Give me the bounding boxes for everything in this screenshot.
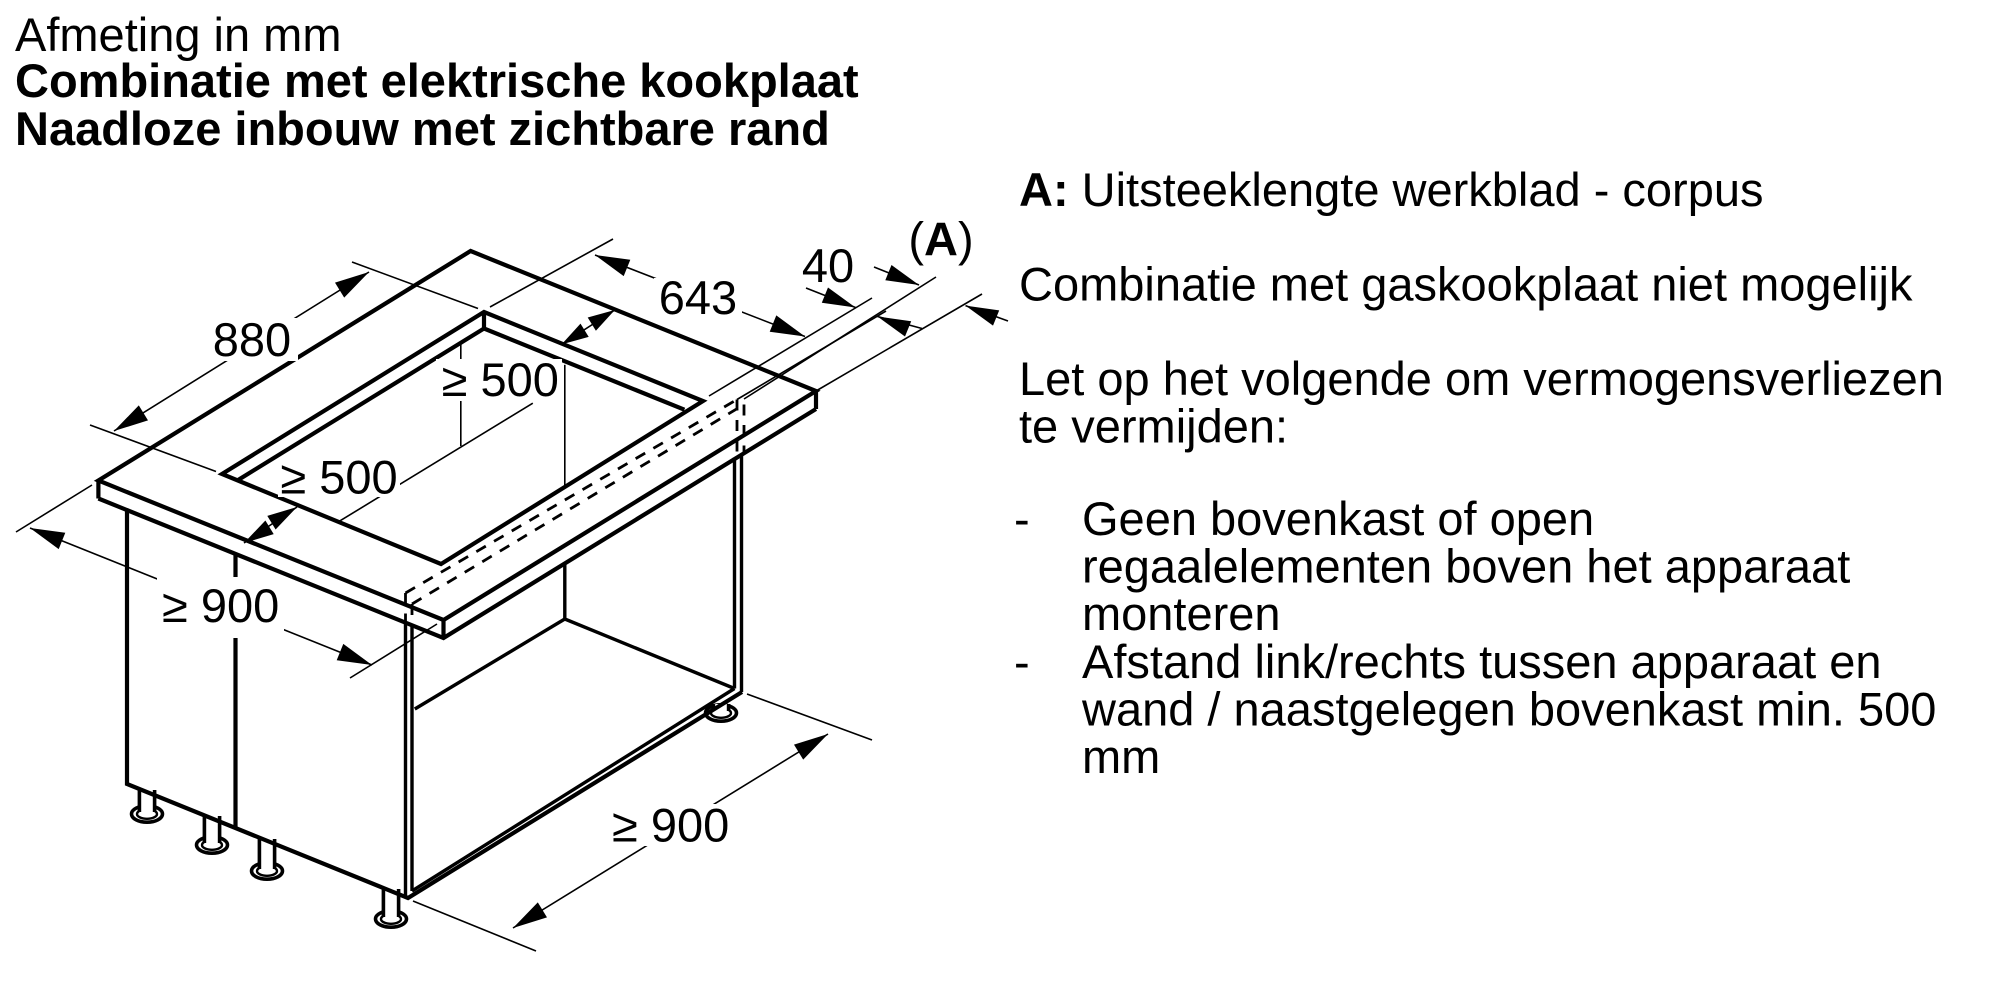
svg-text:≥ 500: ≥ 500 <box>280 451 397 504</box>
svg-text:mm: mm <box>1082 730 1160 783</box>
svg-text:643: 643 <box>659 271 737 324</box>
svg-text:Let op het volgende om vermoge: Let op het volgende om vermogensverlieze… <box>1019 352 1944 405</box>
svg-text:Combinatie met gaskookplaat ni: Combinatie met gaskookplaat niet mogelij… <box>1019 258 1913 311</box>
svg-text:-: - <box>1014 635 1030 688</box>
svg-text:≥ 900: ≥ 900 <box>162 579 279 632</box>
svg-text:Afstand link/rechts tussen app: Afstand link/rechts tussen apparaat en <box>1082 635 1881 688</box>
svg-text:-: - <box>1014 492 1030 545</box>
svg-text:≥ 500: ≥ 500 <box>442 353 559 406</box>
svg-text:Naadloze inbouw met zichtbare: Naadloze inbouw met zichtbare rand <box>15 102 830 155</box>
svg-text:40: 40 <box>802 239 854 292</box>
svg-text:te vermijden:: te vermijden: <box>1019 400 1288 453</box>
svg-text:880: 880 <box>213 313 291 366</box>
svg-text:monteren: monteren <box>1082 587 1281 640</box>
svg-text:≥ 900: ≥ 900 <box>612 799 729 852</box>
svg-text:regaalelementen boven het appa: regaalelementen boven het apparaat <box>1082 540 1850 593</box>
svg-text:(A): (A) <box>908 213 973 266</box>
svg-text:wand / naastgelegen bovenkast: wand / naastgelegen bovenkast min. 500 <box>1081 682 1936 735</box>
svg-text:A: Uitsteeklengte werkblad - c: A: Uitsteeklengte werkblad - corpus <box>1019 163 1763 216</box>
svg-text:Combinatie met elektrische koo: Combinatie met elektrische kookplaat <box>15 54 859 107</box>
svg-text:Geen bovenkast of open: Geen bovenkast of open <box>1082 492 1594 545</box>
